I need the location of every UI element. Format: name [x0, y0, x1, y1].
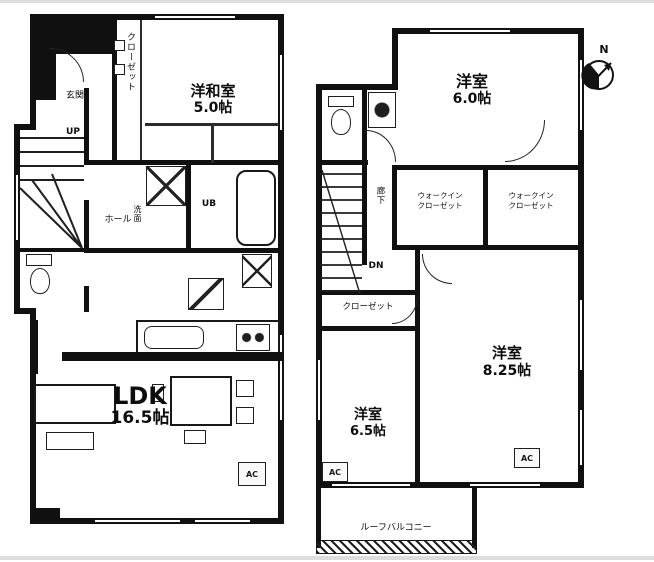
chair-icon [236, 407, 254, 424]
wall [84, 248, 284, 253]
toilet-tank-icon [26, 254, 52, 266]
washing-machine-icon [146, 166, 186, 206]
closet-label-2f: クローゼット [322, 303, 414, 312]
room1-name: 洋室 [436, 74, 508, 91]
wall [415, 250, 420, 482]
senmen-label: 洗面 [132, 205, 143, 245]
window [470, 483, 540, 487]
wc-door-arc [366, 130, 396, 162]
refrigerator-space-icon [242, 254, 272, 288]
genkan-label: 玄関 [58, 92, 92, 101]
wic1-line2: クローゼット [399, 202, 481, 210]
wall [84, 286, 89, 312]
floorplan-canvas: クローゼット 洋和室 5.0帖 UP 玄関 ホール 洗面 UB LDK 16.5… [0, 0, 654, 562]
toilet-bowl-icon [331, 109, 351, 135]
wall [316, 84, 398, 90]
wic2-line2: クローゼット [490, 202, 572, 210]
compass-icon [582, 56, 618, 94]
window [430, 29, 510, 33]
ac-unit-2f-room2: AC [322, 462, 348, 482]
window [95, 519, 180, 523]
wall [362, 165, 367, 265]
stairs-up-label: UP [58, 128, 88, 137]
pantry-icon [188, 278, 224, 310]
closet-door-line [140, 20, 142, 160]
ub-label: UB [194, 200, 224, 209]
window [279, 55, 283, 130]
closet-divider [211, 123, 214, 163]
room1-size: 6.0帖 [436, 92, 508, 107]
wic2-line1: ウォークイン [490, 192, 572, 200]
ac-unit-1f: AC [238, 462, 266, 486]
wic1-line1: ウォークイン [399, 192, 481, 200]
chair-icon [236, 380, 254, 397]
wall [316, 160, 368, 165]
room-yowashitsu-name: 洋和室 [168, 84, 258, 100]
balcony-door [332, 483, 410, 487]
stairs-2f-icon [320, 168, 362, 298]
stairs-dn-label: DN [362, 262, 390, 271]
ldk-size: 16.5帖 [90, 410, 190, 428]
wall [392, 165, 397, 250]
counter-ledge [62, 352, 282, 361]
closet-label: クローゼット [124, 32, 137, 162]
wall [392, 28, 398, 90]
tv-board-icon [30, 320, 38, 374]
roof-balcony-label: ルーフバルコニー [326, 524, 466, 533]
washbasin-icon [368, 92, 396, 128]
wall [483, 165, 488, 250]
bathtub-icon [236, 170, 276, 246]
stairs-1f-icon [18, 124, 86, 250]
wall [112, 14, 117, 165]
ottoman-icon [46, 432, 94, 450]
window [195, 519, 250, 523]
balcony-wall [472, 488, 477, 548]
toilet-tank-icon [328, 96, 354, 107]
ac-unit-2f-room3: AC [514, 448, 540, 468]
hall-label-2f: 廊下 [374, 186, 386, 226]
balcony-railing [316, 540, 477, 554]
balcony-wall [316, 488, 321, 548]
window [579, 300, 583, 370]
toilet-bowl-icon [30, 268, 50, 294]
wall [316, 326, 420, 331]
room3-name: 洋室 [466, 346, 548, 362]
room3-size: 8.25帖 [466, 364, 548, 379]
room-yowashitsu-size: 5.0帖 [172, 101, 254, 116]
wall [186, 160, 191, 253]
window [579, 410, 583, 465]
compass-n-label: N [594, 44, 614, 56]
porch-step [32, 508, 60, 518]
room2-name: 洋室 [334, 408, 402, 423]
scan-streak-top [0, 0, 654, 3]
bedroom3-door-arc [422, 254, 452, 284]
window [155, 15, 235, 19]
chair-icon [184, 430, 206, 444]
sink-icon [144, 326, 204, 349]
stove-icon [236, 324, 270, 351]
scan-streak-bottom [0, 556, 654, 560]
ldk-name: LDK [90, 384, 190, 409]
wall [84, 160, 284, 165]
bedroom1-door-arc [505, 120, 545, 162]
room2-size: 6.5帖 [334, 425, 402, 439]
window [317, 360, 321, 420]
